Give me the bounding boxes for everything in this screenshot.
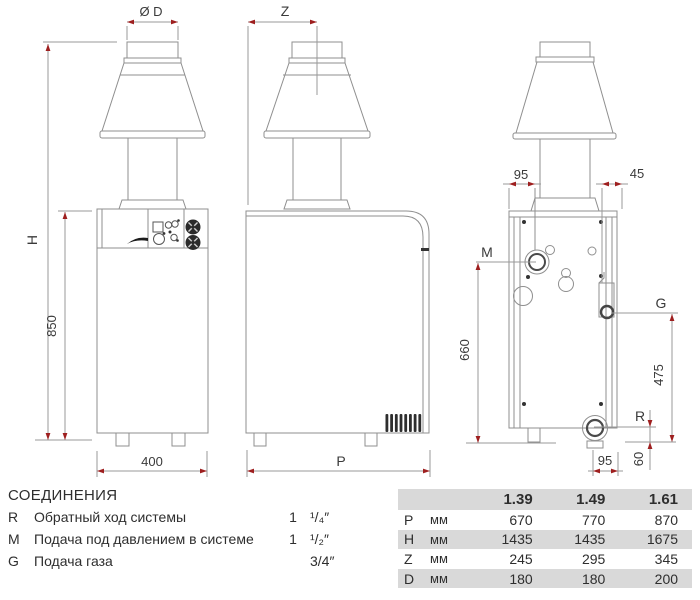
dim-label-95-bottom: 95 — [598, 453, 612, 468]
unit-cell: мм — [430, 532, 474, 547]
model-header: 1.49 — [547, 491, 620, 508]
boiler-dimension-sheet: Ø D H 850 400 Z P 95 45 M G R 660 475 95… — [0, 0, 700, 600]
value-cell: 770 — [547, 512, 620, 528]
legend-row-M: M Подача под давлением в системе 1 ¹/₂″ — [8, 531, 360, 553]
dim-label-P: P — [336, 453, 345, 469]
value-cell: 1435 — [474, 531, 547, 547]
dim-label-95-top: 95 — [514, 167, 528, 182]
value-cell: 180 — [547, 571, 620, 587]
dim-label-45-top: 45 — [630, 166, 644, 181]
dim-label-475: 475 — [651, 364, 666, 386]
dim-label-660: 660 — [457, 339, 472, 361]
side-view — [246, 42, 429, 446]
dim-label-M: M — [481, 244, 493, 260]
spec-table: 1.39 1.49 1.61 P мм 670 770 870 H мм 143… — [398, 489, 692, 588]
value-cell: 345 — [619, 551, 692, 567]
gauge-dials — [186, 220, 200, 250]
panel-screws — [522, 220, 603, 406]
unit-cell: мм — [430, 571, 474, 586]
spec-row-D: D мм 180 180 200 — [398, 569, 692, 589]
value-cell: 200 — [619, 571, 692, 587]
unit-cell: мм — [430, 512, 474, 527]
dim-label-H: H — [24, 235, 40, 245]
model-header: 1.39 — [474, 491, 547, 508]
display-window — [153, 222, 163, 232]
vent-grille — [386, 414, 422, 432]
dim-label-diameter: Ø D — [139, 4, 162, 19]
indicator-lamp — [165, 222, 171, 228]
legend-title: СОЕДИНЕНИЯ — [8, 487, 360, 504]
param-cell: Z — [398, 551, 430, 567]
legend-row-G: G Подача газа 3/4″ — [8, 553, 360, 575]
dim-label-G: G — [656, 295, 667, 311]
param-cell: D — [398, 571, 430, 587]
control-knob — [154, 234, 165, 245]
legend-row-R: R Обратный ход системы 1 ¹/₄″ — [8, 509, 360, 531]
legend-label: Подача газа — [34, 553, 284, 569]
value-cell: 870 — [619, 512, 692, 528]
connections-legend: СОЕДИНЕНИЯ R Обратный ход системы 1 ¹/₄″… — [8, 487, 360, 575]
dimension-lines — [35, 22, 678, 477]
opening-circle — [514, 287, 533, 306]
spec-row-P: P мм 670 770 870 — [398, 510, 692, 530]
legend-key: R — [8, 509, 34, 525]
param-cell: P — [398, 512, 430, 528]
legend-size-fraction: 3/4″ — [302, 553, 360, 569]
model-header: 1.61 — [619, 491, 692, 508]
legend-size-fraction: ¹/₂″ — [302, 531, 360, 547]
r-connection-fitting — [583, 416, 608, 449]
dim-label-400: 400 — [141, 454, 163, 469]
technical-drawing: Ø D H 850 400 Z P 95 45 M G R 660 475 95… — [0, 0, 700, 487]
control-panel — [127, 219, 200, 249]
legend-label: Обратный ход системы — [34, 509, 284, 525]
legend-label: Подача под давлением в системе — [34, 531, 284, 547]
spec-row-H: H мм 1435 1435 1675 — [398, 530, 692, 550]
keyhole-mount — [559, 269, 574, 292]
value-cell: 295 — [547, 551, 620, 567]
value-cell: 180 — [474, 571, 547, 587]
unit-cell: мм — [430, 551, 474, 566]
legend-size-whole: 1 — [284, 509, 302, 525]
selector-knob — [171, 234, 177, 240]
brand-logo-swoosh — [127, 238, 148, 244]
front-view — [97, 42, 208, 446]
selector-knob — [172, 221, 178, 227]
param-cell: H — [398, 531, 430, 547]
legend-key: M — [8, 531, 34, 547]
value-cell: 245 — [474, 551, 547, 567]
dim-label-R: R — [635, 408, 645, 424]
value-cell: 670 — [474, 512, 547, 528]
value-cell: 1675 — [619, 531, 692, 547]
legend-size-fraction: ¹/₄″ — [302, 509, 360, 525]
legend-key: G — [8, 553, 34, 569]
m-connection-fitting — [525, 188, 555, 274]
spec-header-row: 1.39 1.49 1.61 — [398, 489, 692, 510]
spec-row-Z: Z мм 245 295 345 — [398, 549, 692, 569]
dim-label-60: 60 — [631, 452, 646, 466]
dim-label-Z: Z — [281, 3, 290, 19]
value-cell: 1435 — [547, 531, 620, 547]
small-hole — [588, 247, 596, 255]
legend-size-whole: 1 — [284, 531, 302, 547]
dim-label-850: 850 — [44, 315, 59, 337]
rear-view — [509, 42, 617, 448]
dimension-arrows — [46, 20, 675, 474]
